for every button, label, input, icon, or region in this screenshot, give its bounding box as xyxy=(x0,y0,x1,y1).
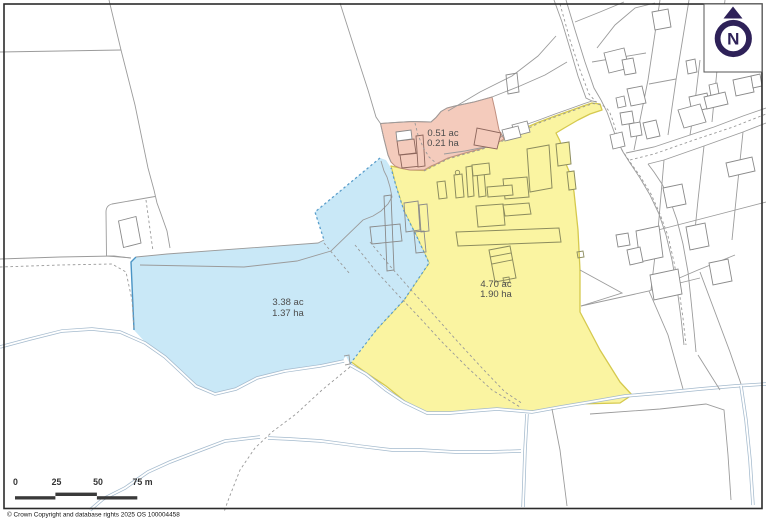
svg-text:1.37 ha: 1.37 ha xyxy=(272,308,304,319)
svg-text:N: N xyxy=(727,30,739,49)
svg-text:50: 50 xyxy=(93,477,103,487)
svg-text:25: 25 xyxy=(52,477,62,487)
svg-text:0: 0 xyxy=(13,477,18,487)
svg-text:0.21 ha: 0.21 ha xyxy=(427,138,459,149)
svg-text:75 m: 75 m xyxy=(132,477,152,487)
svg-text:1.90 ha: 1.90 ha xyxy=(480,289,512,300)
svg-text:© Crown Copyright and database: © Crown Copyright and database rights 20… xyxy=(7,511,180,519)
svg-text:3.38 ac: 3.38 ac xyxy=(272,297,303,308)
